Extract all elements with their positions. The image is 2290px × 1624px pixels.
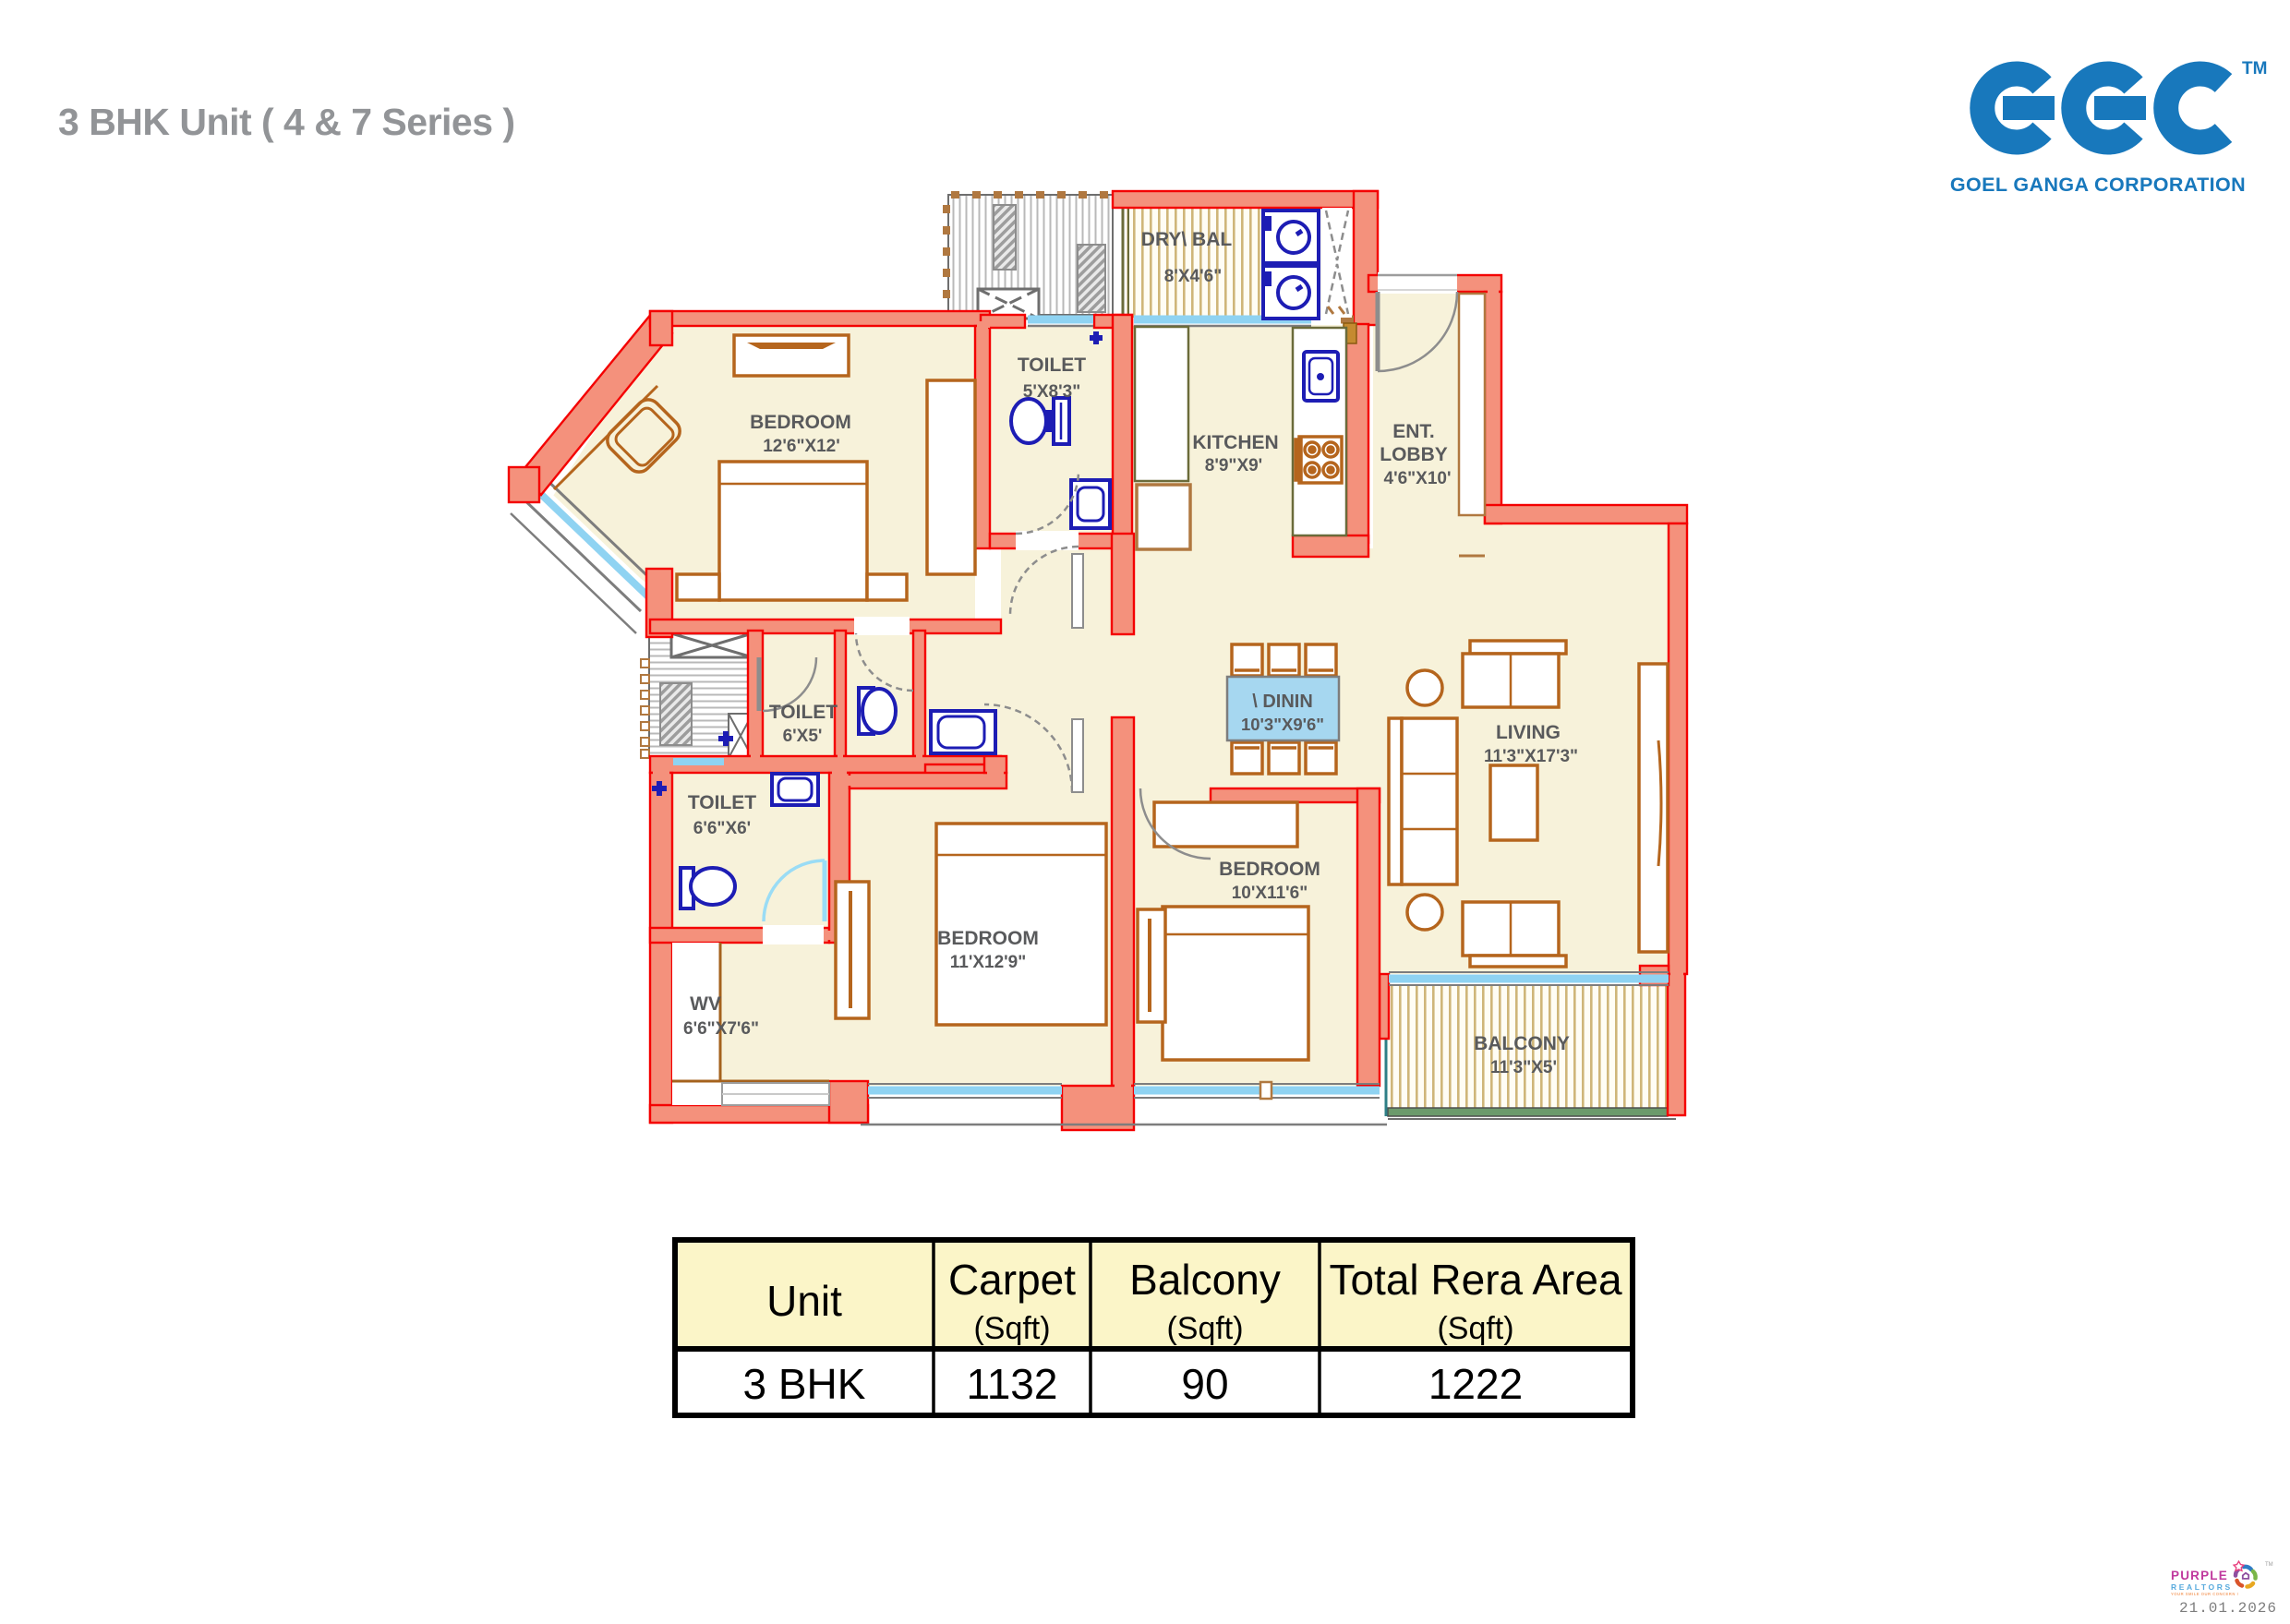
svg-text:4'6"X10': 4'6"X10' [1384,469,1452,488]
svg-text:12'6"X12': 12'6"X12' [763,437,840,456]
svg-text:21.01.2026: 21.01.2026 [2179,1600,2277,1617]
svg-text:6'6"X6': 6'6"X6' [693,819,751,838]
svg-text:Balcony: Balcony [1129,1256,1281,1304]
svg-text:(Sqft): (Sqft) [1166,1311,1243,1346]
svg-text:1132: 1132 [967,1360,1058,1408]
svg-text:LIVING: LIVING [1496,722,1561,743]
svg-text:6'6"X7'6": 6'6"X7'6" [683,1019,759,1039]
svg-text:11'X12'9": 11'X12'9" [950,953,1027,972]
svg-text:BEDROOM: BEDROOM [937,928,1039,949]
svg-text:BALCONY: BALCONY [1474,1033,1570,1054]
svg-text:KITCHEN: KITCHEN [1192,432,1278,453]
svg-text:Total Rera Area: Total Rera Area [1329,1256,1621,1304]
svg-text:BEDROOM: BEDROOM [1219,859,1320,880]
svg-text:10'3"X9'6": 10'3"X9'6" [1241,715,1324,734]
svg-text:GOEL GANGA CORPORATION: GOEL GANGA CORPORATION [1950,174,2246,196]
svg-text:DRY\ BAL: DRY\ BAL [1141,229,1233,250]
svg-text:6'X5': 6'X5' [783,727,823,746]
svg-text:8'X4'6": 8'X4'6" [1164,267,1222,286]
svg-text:8'9"X9': 8'9"X9' [1205,456,1262,475]
svg-text:BEDROOM: BEDROOM [750,412,851,433]
svg-text:11'3"X5': 11'3"X5' [1490,1058,1557,1077]
svg-text:5'X8'3": 5'X8'3" [1023,382,1080,402]
svg-text:1222: 1222 [1428,1360,1523,1408]
svg-text:3 BHK: 3 BHK [743,1360,866,1408]
svg-text:PURPLE: PURPLE [2171,1569,2228,1582]
svg-text:11'3"X17'3": 11'3"X17'3" [1484,747,1578,766]
svg-text:TOILET: TOILET [769,702,838,723]
svg-text:\ DININ: \ DININ [1252,692,1313,712]
svg-text:(Sqft): (Sqft) [1437,1311,1513,1346]
svg-text:REALTORS: REALTORS [2171,1582,2233,1592]
svg-text:Carpet: Carpet [948,1256,1076,1304]
svg-text:Unit: Unit [766,1277,842,1325]
svg-text:LOBBY: LOBBY [1380,444,1448,465]
svg-text:ENT.: ENT. [1392,421,1435,442]
svg-text:10'X11'6": 10'X11'6" [1232,884,1308,903]
svg-text:3 BHK Unit ( 4 & 7 Series ): 3 BHK Unit ( 4 & 7 Series ) [58,101,515,143]
svg-text:WV: WV [690,993,721,1015]
svg-text:TOILET: TOILET [688,792,756,813]
svg-text:(Sqft): (Sqft) [973,1311,1050,1346]
svg-text:90: 90 [1181,1360,1228,1408]
svg-text:TM: TM [2265,1562,2273,1568]
svg-text:YOUR SMILE OUR CONCERN !: YOUR SMILE OUR CONCERN ! [2171,1592,2238,1596]
svg-text:TOILET: TOILET [1018,355,1086,376]
svg-text:TM: TM [2242,59,2267,78]
